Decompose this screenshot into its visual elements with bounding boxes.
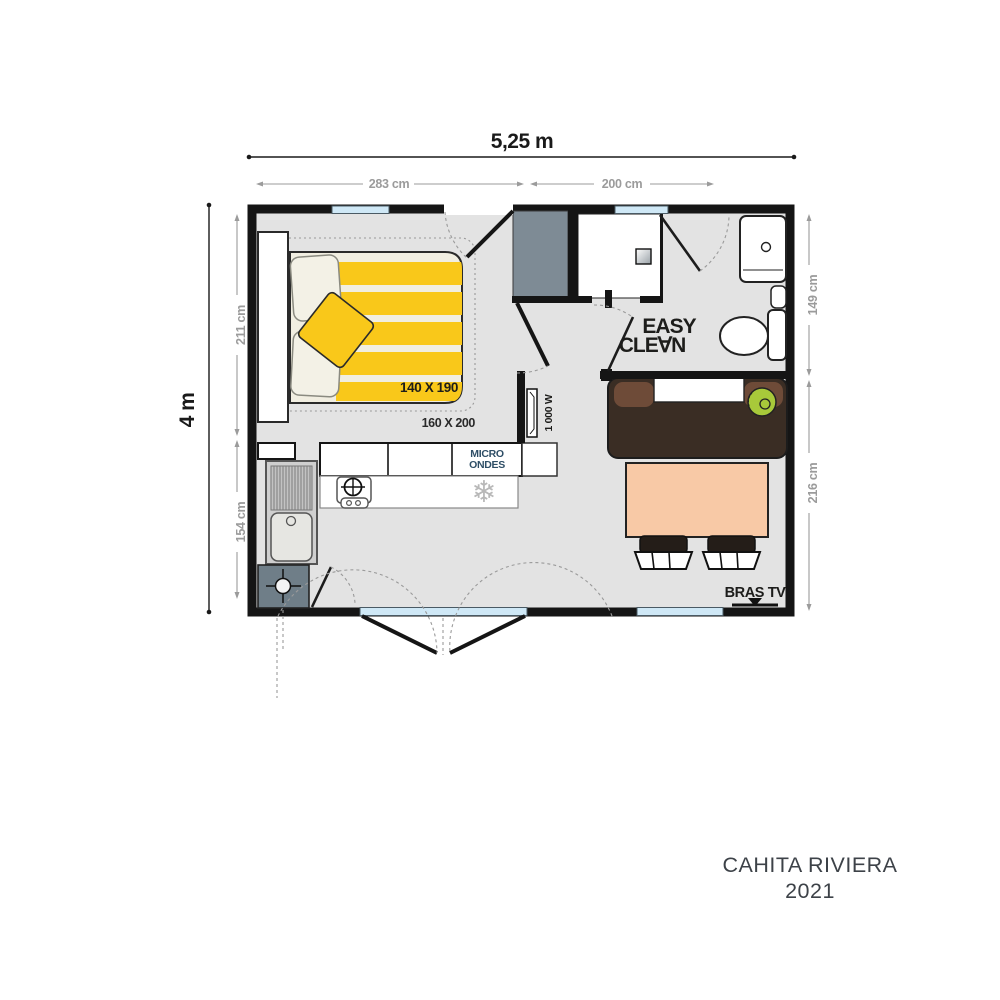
microwave-label-line2: ONDES bbox=[469, 459, 505, 471]
bathroom-front-wall-right bbox=[640, 296, 663, 303]
french-door-leaf-right bbox=[450, 616, 525, 653]
kitchen-sink bbox=[266, 461, 317, 564]
dim-200-label: 200 cm bbox=[602, 177, 643, 191]
window-top-left bbox=[332, 206, 389, 214]
model-year: 2021 bbox=[785, 879, 835, 903]
dining-table bbox=[626, 463, 768, 537]
dim-216-label: 216 cm bbox=[806, 463, 820, 504]
shower-drain-icon bbox=[636, 249, 651, 264]
sink-basin bbox=[271, 513, 312, 561]
dim-154-label: 154 cm bbox=[234, 502, 248, 543]
dim-right-lower: 216 cm bbox=[806, 380, 820, 611]
easy-clean-logo-line2: CLE∀N bbox=[619, 334, 686, 357]
french-door-glazing bbox=[360, 608, 527, 616]
bathroom-front-wall-left bbox=[512, 296, 592, 303]
floor-plan-canvas: 140 X 190 160 X 200 MICRO ONDES ❄ bbox=[0, 0, 1000, 1000]
window-top-right bbox=[615, 206, 668, 214]
floor-plan-page: 140 X 190 160 X 200 MICRO ONDES ❄ bbox=[0, 0, 1000, 1000]
dim-283-label: 283 cm bbox=[369, 177, 410, 191]
heater-power-label: 1 000 W bbox=[543, 394, 555, 431]
stove bbox=[337, 477, 371, 508]
chair-left bbox=[635, 536, 692, 569]
sofa-white-cushion bbox=[654, 378, 744, 402]
living-partition-wall bbox=[600, 371, 794, 379]
dim-left-upper: 211 cm bbox=[234, 214, 248, 436]
model-name: CAHITA RIVIERA bbox=[722, 853, 897, 877]
sofa-back-cushion-left bbox=[614, 382, 654, 407]
bedroom-zone: 140 X 190 160 X 200 bbox=[258, 232, 475, 430]
kitchen-corner-unit bbox=[522, 443, 557, 476]
sofa bbox=[608, 378, 787, 458]
window-bottom-right bbox=[637, 608, 723, 616]
dim-left-lower: 154 cm bbox=[234, 440, 248, 599]
title-block: CAHITA RIVIERA 2021 bbox=[722, 853, 897, 903]
green-round-cushion bbox=[748, 388, 776, 416]
bed-headboard bbox=[258, 232, 288, 422]
bathroom-door-stub bbox=[605, 290, 612, 308]
total-width-label: 5,25 m bbox=[491, 130, 553, 153]
total-height-label: 4 m bbox=[176, 393, 199, 428]
hall-wall bbox=[517, 371, 525, 443]
bed-alt-size-label: 160 X 200 bbox=[422, 416, 476, 430]
dim-149-label: 149 cm bbox=[806, 275, 820, 316]
dim-right-upper: 149 cm bbox=[806, 214, 820, 376]
toilet-tank bbox=[768, 310, 786, 360]
partition-hinge-post bbox=[601, 369, 612, 381]
fridge-snowflake-icon: ❄ bbox=[471, 476, 496, 509]
dim-top-left-room: 283 cm bbox=[256, 177, 524, 191]
dim-211-label: 211 cm bbox=[234, 305, 248, 345]
wardrobe-side-wall bbox=[568, 209, 578, 300]
toilet-bowl bbox=[720, 317, 768, 355]
heater-symbol-icon bbox=[276, 579, 291, 594]
french-door-leaf-left bbox=[362, 616, 437, 653]
shower-side-wall bbox=[660, 214, 663, 300]
sink-drainboard bbox=[271, 466, 312, 510]
washbasin bbox=[740, 216, 786, 282]
bed: 140 X 190 bbox=[290, 252, 462, 403]
chair-right bbox=[703, 536, 760, 569]
dim-top-right-room: 200 cm bbox=[530, 177, 714, 191]
kitchen-shelf bbox=[258, 443, 295, 459]
wardrobe bbox=[513, 211, 568, 299]
bed-size-label: 140 X 190 bbox=[400, 380, 458, 395]
